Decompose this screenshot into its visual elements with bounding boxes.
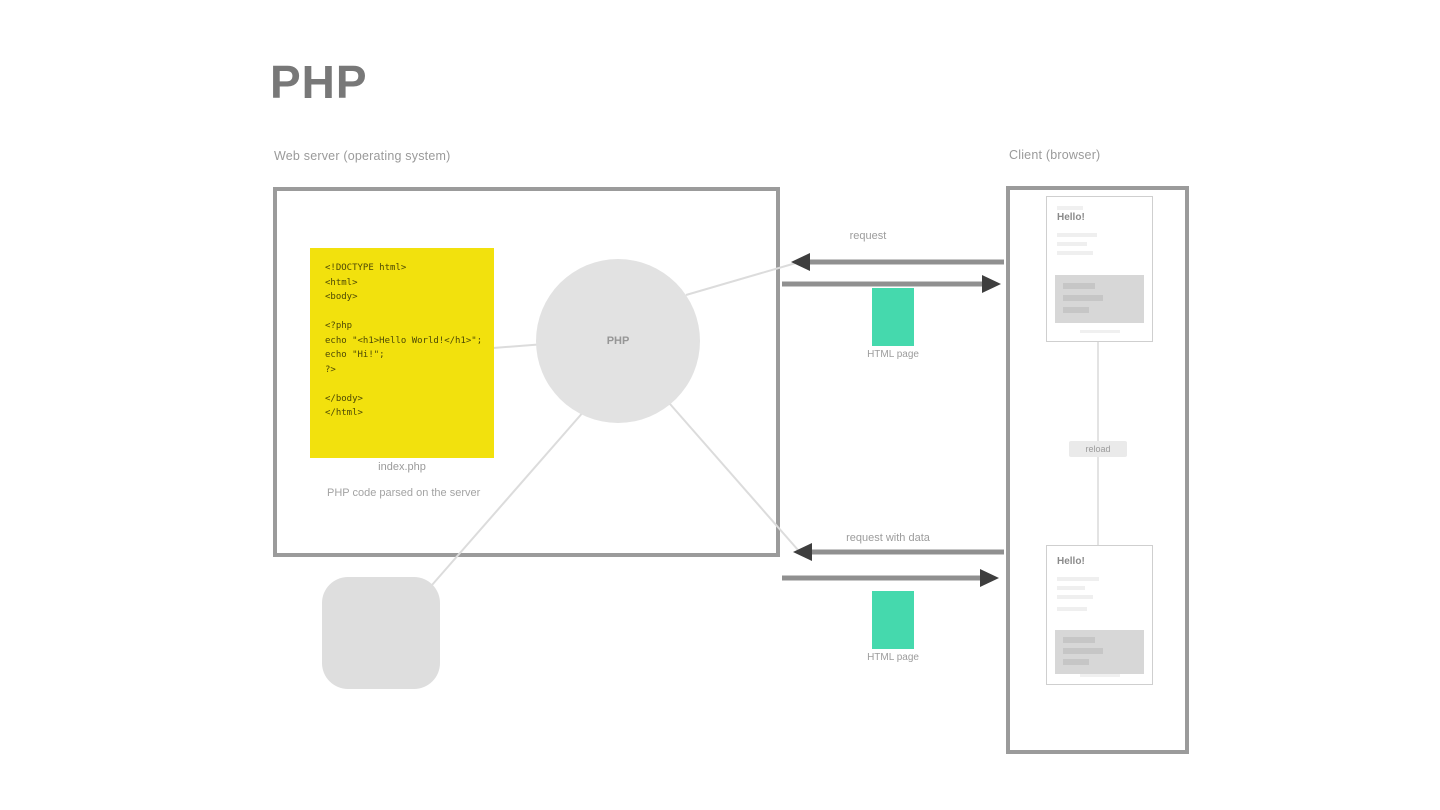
text-line xyxy=(1057,233,1097,237)
request-bottom-label: request with data xyxy=(812,532,964,544)
browser-page-card-1: Hello! xyxy=(1046,196,1153,342)
text-line xyxy=(1057,607,1087,611)
server-section-label: Web server (operating system) xyxy=(274,149,450,163)
arrow-right-icon xyxy=(980,569,999,587)
text-line xyxy=(1063,295,1103,301)
html-payload-bottom-label: HTML page xyxy=(846,652,940,663)
arrow-right-icon xyxy=(982,275,1001,293)
php-code-file: <!DOCTYPE html> <html> <body> <?php echo… xyxy=(310,248,494,458)
html-payload-bottom xyxy=(872,591,914,649)
html-payload-top-label: HTML page xyxy=(846,349,940,360)
page-content-block xyxy=(1055,630,1144,674)
html-payload-top xyxy=(872,288,914,346)
php-interpreter-circle: PHP xyxy=(536,259,700,423)
text-line xyxy=(1057,595,1093,599)
page-card-title: Hello! xyxy=(1057,556,1085,567)
database-cylinder xyxy=(322,577,440,689)
arrow-left-icon xyxy=(793,543,812,561)
text-line xyxy=(1080,674,1120,677)
text-line xyxy=(1057,251,1093,255)
arrow-left-icon xyxy=(791,253,810,271)
client-section-label: Client (browser) xyxy=(1009,148,1100,162)
text-line xyxy=(1063,283,1095,289)
text-line xyxy=(1063,659,1089,665)
page-card-title: Hello! xyxy=(1057,212,1085,223)
reload-badge: reload xyxy=(1069,441,1127,457)
text-line xyxy=(1057,586,1085,590)
text-line xyxy=(1057,242,1087,246)
request-top-label: request xyxy=(822,230,914,242)
text-line xyxy=(1063,637,1095,643)
text-line xyxy=(1057,577,1099,581)
php-code-text: <!DOCTYPE html> <html> <body> <?php echo… xyxy=(325,261,486,421)
code-filename-caption: index.php xyxy=(310,461,494,473)
text-line xyxy=(1063,648,1103,654)
page-content-block xyxy=(1055,275,1144,323)
page-title: PHP xyxy=(270,55,368,109)
code-note: PHP code parsed on the server xyxy=(327,487,480,499)
diagram-canvas: PHP Web server (operating system) Client… xyxy=(0,0,1440,810)
text-line xyxy=(1057,206,1083,210)
text-line xyxy=(1080,330,1120,333)
text-line xyxy=(1063,307,1089,313)
php-interpreter-label: PHP xyxy=(607,335,630,347)
browser-page-card-2: Hello! xyxy=(1046,545,1153,685)
